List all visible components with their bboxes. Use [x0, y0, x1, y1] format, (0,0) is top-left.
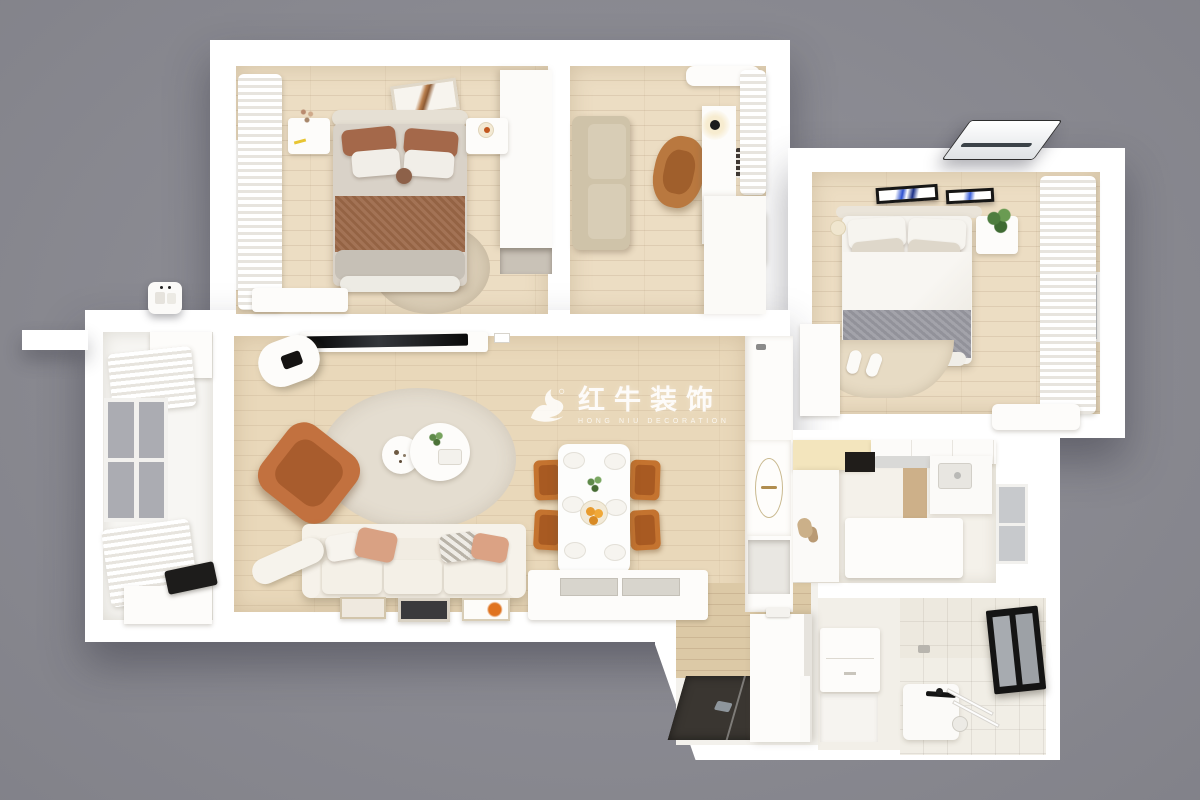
- potted-plant: [982, 204, 1016, 236]
- chair-pad: [634, 465, 655, 496]
- pompom-cushion: [396, 168, 412, 184]
- dining-chair: [629, 509, 661, 551]
- dining-table: [558, 444, 630, 574]
- wc-vanity: [820, 628, 880, 692]
- leaning-frame-dark: [398, 598, 450, 622]
- kitchen-niche: [845, 452, 875, 472]
- watermark-text: 红牛装饰 HONG NIU DECORATION: [578, 387, 730, 425]
- armchair-seat: [270, 434, 349, 512]
- table-greens: [584, 474, 604, 494]
- lamp-flame: [484, 127, 490, 133]
- watermark: 红牛装饰 HONG NIU DECORATION: [524, 384, 730, 428]
- wc-step: [820, 694, 878, 742]
- chair-seat: [660, 147, 698, 196]
- wardrobe-open-shelf: [500, 248, 552, 274]
- chair-pad: [538, 514, 560, 545]
- sideboard-glass: [560, 578, 618, 596]
- wall-lamp: [710, 120, 720, 130]
- floorplan-3d-render: 红牛装饰 HONG NIU DECORATION: [0, 0, 1200, 800]
- sofa-cushion: [588, 184, 626, 239]
- bed-foot-roll: [340, 276, 460, 292]
- study-sofa: [572, 116, 630, 250]
- bull-logo-icon: [524, 384, 570, 428]
- partition-glass-cabinet: [748, 540, 790, 594]
- table-tray: [438, 449, 462, 465]
- chair-pad: [538, 465, 559, 496]
- entry-threshold: [800, 676, 810, 742]
- leaning-frame-orange: [462, 598, 510, 621]
- window-mullion: [108, 458, 164, 462]
- fruit-bowl: [580, 500, 608, 526]
- seat-cushion: [384, 560, 442, 594]
- shower-head: [952, 716, 968, 732]
- intercom-box: [148, 282, 182, 314]
- cabinet-top-item: [766, 608, 790, 617]
- bathroom-window: [986, 606, 1046, 695]
- leaning-frame: [340, 597, 386, 619]
- window-mullion: [999, 523, 1025, 526]
- dining-sideboard: [528, 570, 708, 620]
- plate: [605, 499, 627, 516]
- bedroom2-cabinet: [800, 324, 840, 416]
- door-handle: [761, 486, 777, 489]
- intercom-led: [160, 286, 163, 289]
- watermark-title: 红牛装饰: [578, 387, 730, 414]
- master-wardrobe: [500, 70, 552, 248]
- study-curtain: [740, 70, 766, 195]
- sofa-cushion: [588, 124, 626, 179]
- faucet-knob: [936, 688, 943, 695]
- floor-drain: [918, 645, 930, 653]
- pillow-white: [351, 148, 401, 178]
- wall-switch: [494, 333, 510, 343]
- partition-latch: [756, 344, 766, 350]
- seat-cushion: [322, 560, 382, 594]
- plate: [564, 542, 586, 559]
- chair-pad: [634, 514, 656, 545]
- master-dresser: [252, 288, 348, 312]
- bedside-lamp2: [830, 220, 846, 236]
- plate: [604, 453, 626, 470]
- dining-chair: [629, 459, 660, 500]
- intercom-button: [155, 292, 165, 304]
- balcony-window: [104, 398, 168, 522]
- table-plant-sprig: [428, 431, 444, 447]
- intercom-led: [168, 286, 171, 289]
- sideboard-glass: [622, 578, 680, 596]
- dried-flowers: [298, 106, 316, 126]
- window-pane: [992, 616, 1016, 687]
- coffee-table-large: [410, 423, 470, 481]
- seat-cushion: [444, 560, 506, 594]
- bedroom2-bench: [992, 404, 1080, 430]
- wall-art-blue: [946, 188, 995, 204]
- study-cabinet: [704, 196, 766, 314]
- ac-vent-line: [960, 143, 1033, 147]
- plate: [604, 544, 626, 561]
- vanity-drawer-line: [826, 658, 874, 659]
- intercom-button: [167, 293, 176, 304]
- decorative-door: [747, 440, 791, 536]
- kitchen-window: [996, 484, 1028, 564]
- brown-blanket: [335, 196, 465, 252]
- exterior-ledge: [22, 330, 88, 350]
- table-decor-dots: [394, 450, 399, 455]
- vanity-handle: [844, 672, 856, 675]
- plate: [563, 452, 585, 469]
- sink-counter: [930, 456, 992, 514]
- bedroom2-curtain: [1040, 176, 1096, 414]
- master-curtain: [238, 74, 282, 310]
- speaker-grille: [280, 350, 304, 370]
- window-pane: [1015, 613, 1039, 684]
- watermark-subtitle: HONG NIU DECORATION: [578, 418, 730, 425]
- kitchen-island: [845, 518, 963, 578]
- oranges: [586, 507, 595, 516]
- keys-on-mat: [714, 701, 733, 713]
- sofa-armrest: [508, 524, 526, 598]
- sink-faucet: [954, 472, 961, 479]
